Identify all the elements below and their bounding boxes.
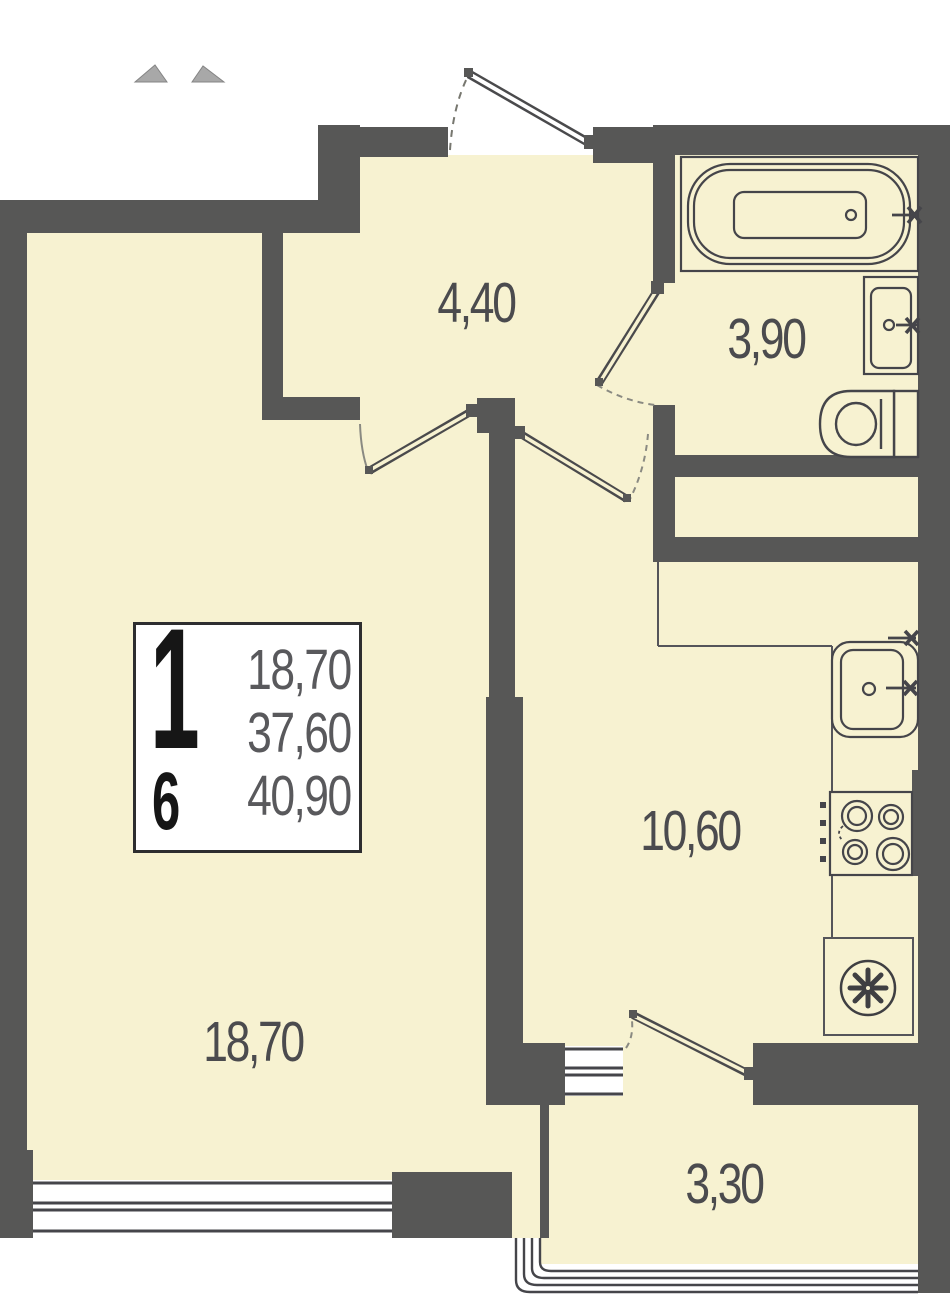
- floor-number: 6: [152, 761, 180, 843]
- total-area: 40,90: [248, 768, 351, 825]
- apartment-info-box: 1 6 18,70 37,60 40,90: [133, 622, 362, 853]
- entrance-door-icon: [450, 68, 598, 150]
- living-area: 18,70: [248, 642, 351, 699]
- stove-icon: [820, 792, 912, 875]
- room-label-bathroom: 3,90: [727, 306, 804, 372]
- floor-plan: 4,40 3,90 10,60 18,70 3,30 1 6 18,70 37,…: [0, 0, 950, 1304]
- room-label-hallway: 4,40: [437, 270, 514, 336]
- window-balcony: [565, 1046, 623, 1096]
- rooms-count: 1: [150, 603, 200, 775]
- room-label-balcony: 3,30: [685, 1151, 762, 1217]
- window-living-room: [33, 1180, 392, 1238]
- area-without-balcony: 37,60: [248, 705, 351, 762]
- room-label-kitchen: 10,60: [640, 798, 740, 864]
- kitchen-sink-icon: [832, 631, 918, 737]
- logo-marks: [135, 65, 224, 82]
- room-label-living-room: 18,70: [203, 1009, 303, 1075]
- toilet-icon: [820, 391, 918, 457]
